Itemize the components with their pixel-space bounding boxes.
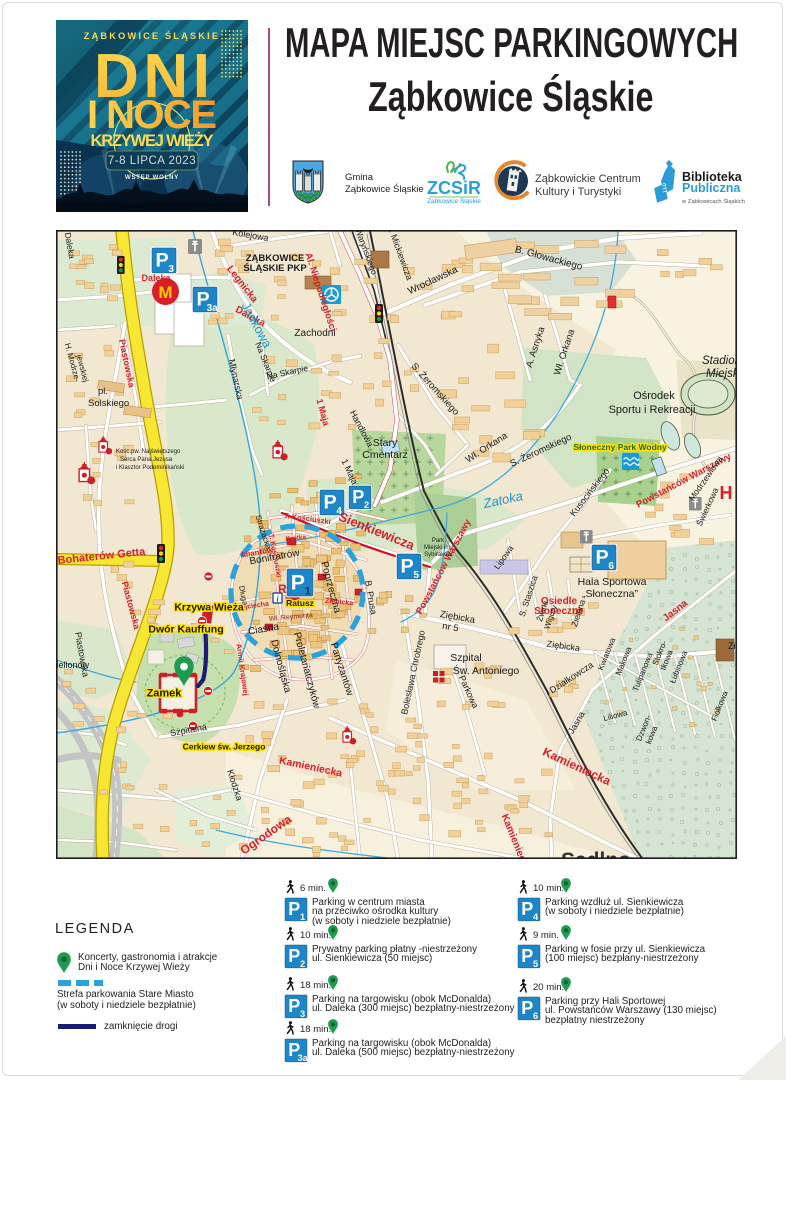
svg-text:Zamek: Zamek (147, 688, 183, 700)
svg-text:Cmentarz: Cmentarz (362, 449, 408, 461)
svg-text:M: M (158, 283, 172, 302)
svg-text:P: P (291, 570, 305, 594)
svg-text:Ząbkowice Śląskie: Ząbkowice Śląskie (427, 196, 481, 204)
svg-text:„Słoneczna”: „Słoneczna” (582, 588, 639, 600)
svg-text:1: 1 (305, 586, 311, 598)
svg-text:Ratusz: Ratusz (286, 598, 314, 608)
svg-text:P: P (352, 487, 364, 507)
svg-text:P: P (288, 899, 300, 919)
svg-text:Św. Antoniego: Św. Antoniego (453, 664, 520, 677)
svg-text:2: 2 (364, 500, 369, 510)
svg-text:6 min.: 6 min. (300, 883, 326, 894)
svg-text:2: 2 (300, 959, 305, 969)
svg-text:Słoneczny Park Wodny: Słoneczny Park Wodny (573, 442, 667, 452)
svg-text:i Klasztor Podominikański: i Klasztor Podominikański (116, 465, 184, 471)
svg-text:Krzywa Wieża: Krzywa Wieża (174, 602, 244, 614)
svg-text:Kośc.pw. Najświętszego: Kośc.pw. Najświętszego (116, 449, 181, 455)
svg-text:P: P (324, 492, 337, 514)
svg-text:R: R (278, 582, 287, 596)
svg-text:ZĄBKOWICE ŚLĄSKIE: ZĄBKOWICE ŚLĄSKIE (84, 30, 220, 41)
svg-text:Cerkiew św. Jerzego: Cerkiew św. Jerzego (183, 742, 266, 752)
svg-text:Zachodni: Zachodni (294, 328, 335, 339)
svg-text:P: P (401, 556, 414, 578)
svg-text:ZCSiR: ZCSiR (427, 178, 481, 198)
svg-text:7-8 LIPCA 2023: 7-8 LIPCA 2023 (108, 155, 196, 167)
svg-text:18 min.: 18 min. (300, 1024, 331, 1035)
svg-text:18 min.: 18 min. (300, 980, 331, 991)
svg-text:H: H (720, 483, 733, 503)
svg-text:KRZYWEJ WIEŻY: KRZYWEJ WIEŻY (91, 132, 214, 150)
svg-text:1: 1 (300, 912, 305, 922)
svg-text:pl.: pl. (98, 386, 108, 397)
svg-text:3a: 3a (207, 303, 219, 314)
svg-text:P: P (288, 996, 300, 1016)
svg-text:Sportu i Rekreacji: Sportu i Rekreacji (609, 404, 696, 416)
svg-text:Daleka: Daleka (141, 273, 171, 283)
svg-text:6: 6 (533, 1011, 538, 1021)
svg-text:9 min.: 9 min. (533, 930, 559, 941)
svg-text:P: P (521, 946, 533, 966)
svg-text:Park: Park (432, 538, 445, 544)
svg-text:Ośrodek: Ośrodek (633, 390, 675, 402)
svg-text:Sybiraków: Sybiraków (424, 552, 452, 558)
svg-text:Miejski im.: Miejski im. (424, 545, 452, 551)
svg-text:10 min.: 10 min. (300, 930, 331, 941)
svg-text:WSTĘP WOLNY: WSTĘP WOLNY (125, 175, 179, 181)
svg-text:P: P (521, 899, 533, 919)
svg-text:Dwór Kauffung: Dwór Kauffung (148, 624, 223, 636)
svg-text:Serca Pana Jezusa: Serca Pana Jezusa (120, 457, 173, 463)
svg-text:3: 3 (300, 1009, 305, 1019)
svg-text:10 min.: 10 min. (533, 883, 564, 894)
svg-text:Stary: Stary (373, 437, 398, 449)
svg-text:P: P (521, 998, 533, 1018)
svg-text:I NOCE: I NOCE (87, 93, 217, 137)
svg-text:Stadion: Stadion (702, 355, 737, 367)
svg-text:P: P (596, 547, 609, 569)
svg-text:3a: 3a (297, 1053, 308, 1063)
svg-text:Solskiego: Solskiego (88, 398, 129, 409)
svg-text:ŚLĄSKIE PKP: ŚLĄSKIE PKP (243, 262, 307, 274)
svg-text:Miejski: Miejski (706, 368, 737, 380)
svg-text:Szpital: Szpital (450, 652, 482, 664)
svg-text:P: P (156, 250, 169, 272)
svg-text:20 min.: 20 min. (533, 982, 564, 993)
svg-text:4: 4 (533, 912, 539, 922)
svg-text:P: P (288, 946, 300, 966)
svg-text:6: 6 (608, 561, 614, 572)
svg-text:5: 5 (533, 959, 538, 969)
svg-text:Hala Sportowa: Hala Sportowa (578, 576, 647, 588)
svg-text:5: 5 (413, 570, 419, 581)
